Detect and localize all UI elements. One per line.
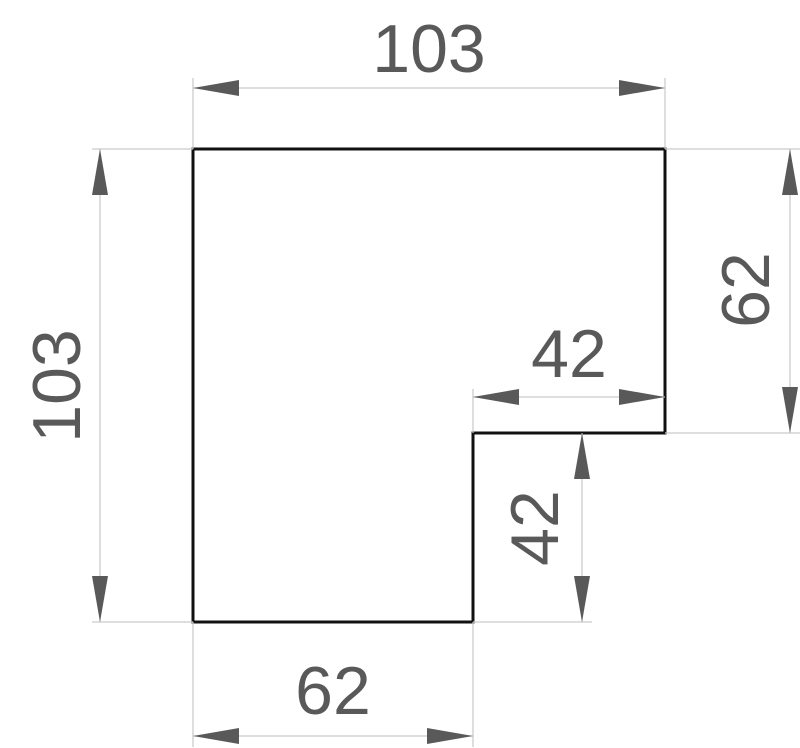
dimension-top-width: 103 [193, 11, 665, 149]
dimension-label-right-height: 62 [708, 252, 784, 328]
dimension-notch-width: 42 [473, 316, 665, 433]
dimension-label-notch-width: 42 [531, 316, 607, 392]
dimension-left-height: 103 [19, 149, 193, 622]
arrowhead-up-icon [782, 149, 798, 195]
arrowhead-down-icon [574, 576, 590, 622]
dimension-right-height: 62 [665, 149, 800, 433]
dimension-bottom-width: 62 [193, 622, 473, 747]
arrowhead-up-icon [92, 149, 108, 195]
arrowhead-right-icon [427, 728, 473, 744]
arrowhead-left-icon [193, 728, 239, 744]
arrowhead-left-icon [193, 80, 239, 96]
arrowhead-up-icon [574, 433, 590, 479]
drawing-area: 103 103 62 42 [0, 0, 800, 748]
arrowhead-down-icon [92, 576, 108, 622]
dimension-label-top-width: 103 [372, 11, 485, 87]
technical-drawing-canvas: 103 103 62 42 [0, 0, 800, 748]
dimension-label-bottom-width: 62 [295, 653, 371, 729]
dimension-notch-height: 42 [473, 433, 592, 622]
dimension-label-left-height: 103 [19, 329, 95, 442]
arrowhead-left-icon [473, 389, 519, 405]
arrowhead-right-icon [619, 80, 665, 96]
dimension-label-notch-height: 42 [497, 490, 573, 566]
arrowhead-right-icon [619, 389, 665, 405]
arrowhead-down-icon [782, 387, 798, 433]
